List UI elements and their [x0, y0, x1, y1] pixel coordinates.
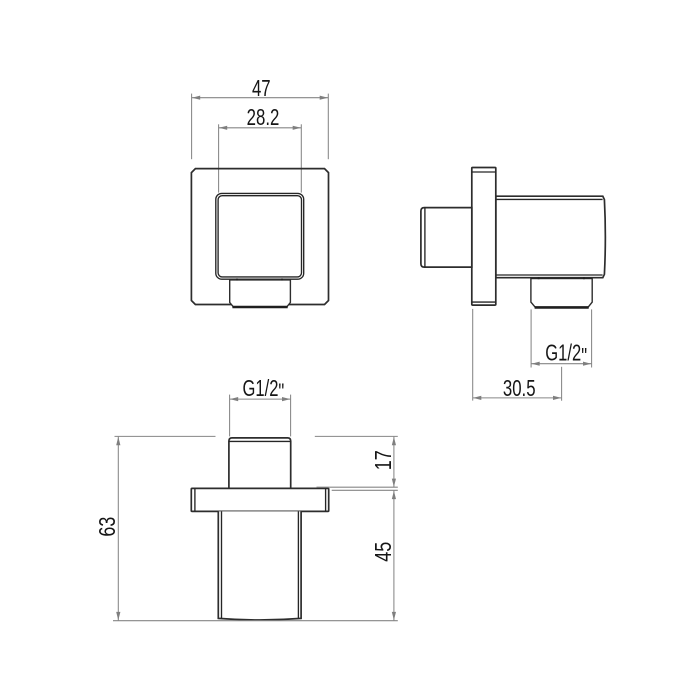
svg-text:G1/2": G1/2"	[243, 377, 285, 406]
svg-text:30.5: 30.5	[503, 377, 536, 402]
svg-text:45: 45	[371, 542, 397, 562]
svg-text:28.2: 28.2	[247, 106, 280, 131]
svg-text:47: 47	[252, 77, 271, 102]
svg-text:G1/2": G1/2"	[545, 341, 587, 370]
svg-text:63: 63	[95, 517, 121, 537]
svg-text:17: 17	[371, 450, 397, 470]
